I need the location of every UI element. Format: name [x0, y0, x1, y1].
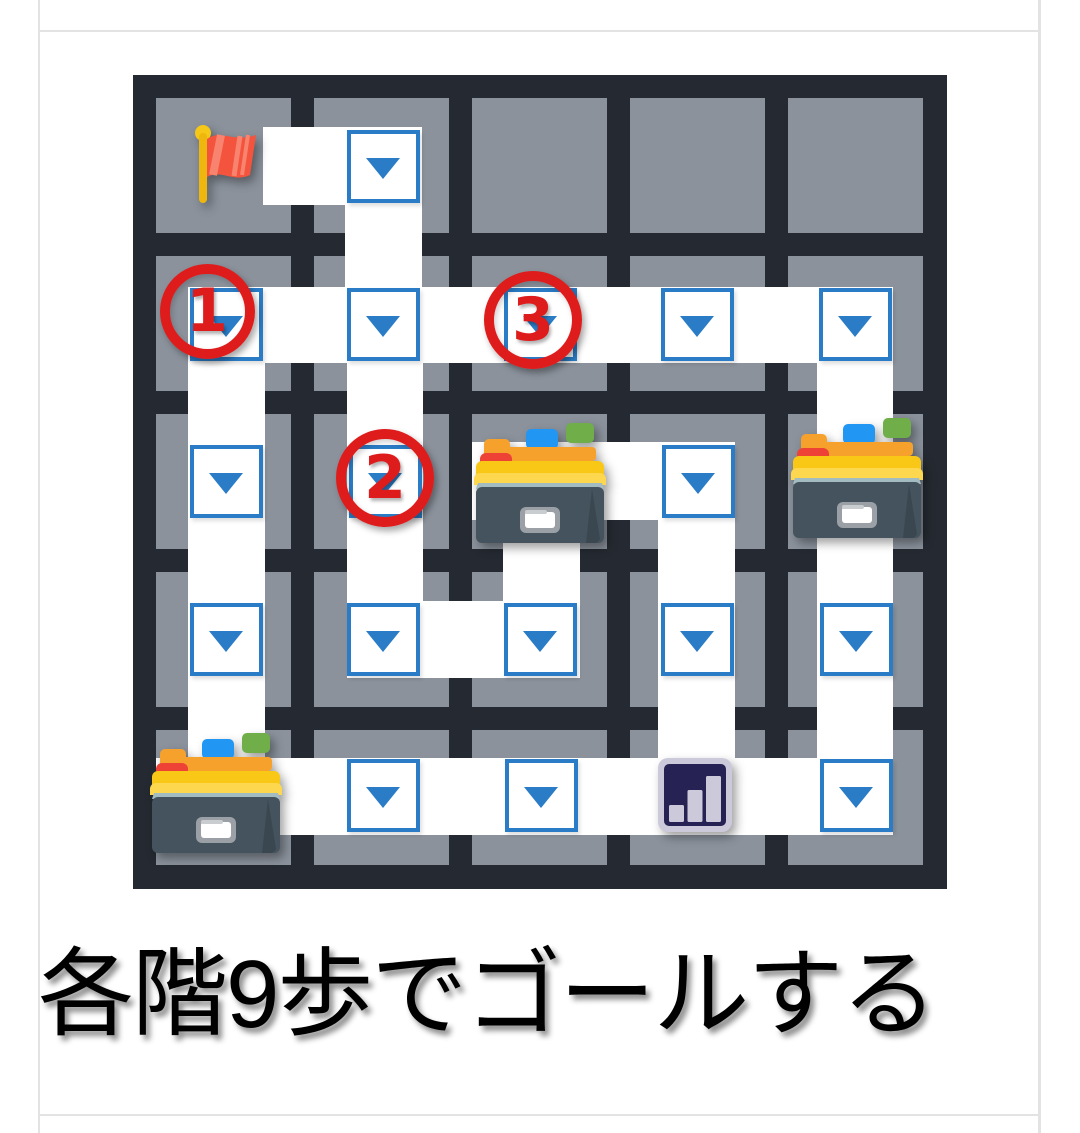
dropdown-cell-r5c2[interactable] — [347, 759, 420, 832]
dropdown-arrow-icon — [839, 631, 873, 652]
triangular-flag-icon — [188, 123, 262, 207]
circle-number-label: 3 — [512, 290, 554, 350]
dropdown-arrow-icon — [680, 631, 714, 652]
dropdown-cell-r4c4[interactable] — [661, 603, 734, 676]
numbered-circle-1: 1 — [160, 264, 255, 359]
path-segment-2 — [345, 205, 422, 287]
container-border-bottom — [38, 1114, 1038, 1116]
dropdown-cell-r2c5[interactable] — [819, 288, 892, 361]
dropdown-arrow-icon — [209, 631, 243, 652]
dropdown-cell-r2c4[interactable] — [661, 288, 734, 361]
card-file-box-icon — [146, 725, 286, 857]
grid-cell-r1c4 — [630, 98, 765, 233]
dropdown-cell-r4c1[interactable] — [190, 603, 263, 676]
maze-board: 123 — [133, 75, 947, 889]
grid-cell-r1c3 — [472, 98, 607, 233]
path-segment-4 — [188, 363, 265, 758]
dropdown-cell-r2c2[interactable] — [347, 288, 420, 361]
numbered-circle-2: 2 — [336, 429, 434, 527]
numbered-circle-3: 3 — [484, 271, 582, 369]
dropdown-arrow-icon — [366, 631, 400, 652]
dropdown-arrow-icon — [366, 316, 400, 337]
dropdown-arrow-icon — [680, 316, 714, 337]
dropdown-arrow-icon — [838, 316, 872, 337]
dropdown-arrow-icon — [839, 787, 873, 808]
dropdown-cell-r5c5[interactable] — [820, 759, 893, 832]
dropdown-arrow-icon — [523, 631, 557, 652]
circle-number-label: 1 — [186, 281, 228, 341]
card-file-box-icon — [787, 410, 927, 542]
dropdown-arrow-icon — [681, 473, 715, 494]
dropdown-arrow-icon — [209, 473, 243, 494]
grid-cell-r1c5 — [788, 98, 923, 233]
dropdown-cell-r4c2[interactable] — [347, 603, 420, 676]
circle-number-label: 2 — [364, 448, 406, 508]
dropdown-cell-r3c1[interactable] — [190, 445, 263, 518]
dropdown-arrow-icon — [524, 787, 558, 808]
dropdown-cell-r3c4[interactable] — [662, 445, 735, 518]
dropdown-arrow-icon — [366, 787, 400, 808]
card-file-box-icon — [470, 415, 610, 547]
container-border-top — [38, 30, 1038, 32]
dropdown-cell-r4c3[interactable] — [504, 603, 577, 676]
dropdown-arrow-icon — [366, 158, 400, 179]
dropdown-cell-r4c5[interactable] — [820, 603, 893, 676]
dropdown-cell-r5c3[interactable] — [505, 759, 578, 832]
bar-chart-icon — [657, 757, 733, 833]
dropdown-cell-r1c2[interactable] — [347, 130, 420, 203]
caption-text: 各階9歩でゴールする — [38, 942, 1042, 1048]
